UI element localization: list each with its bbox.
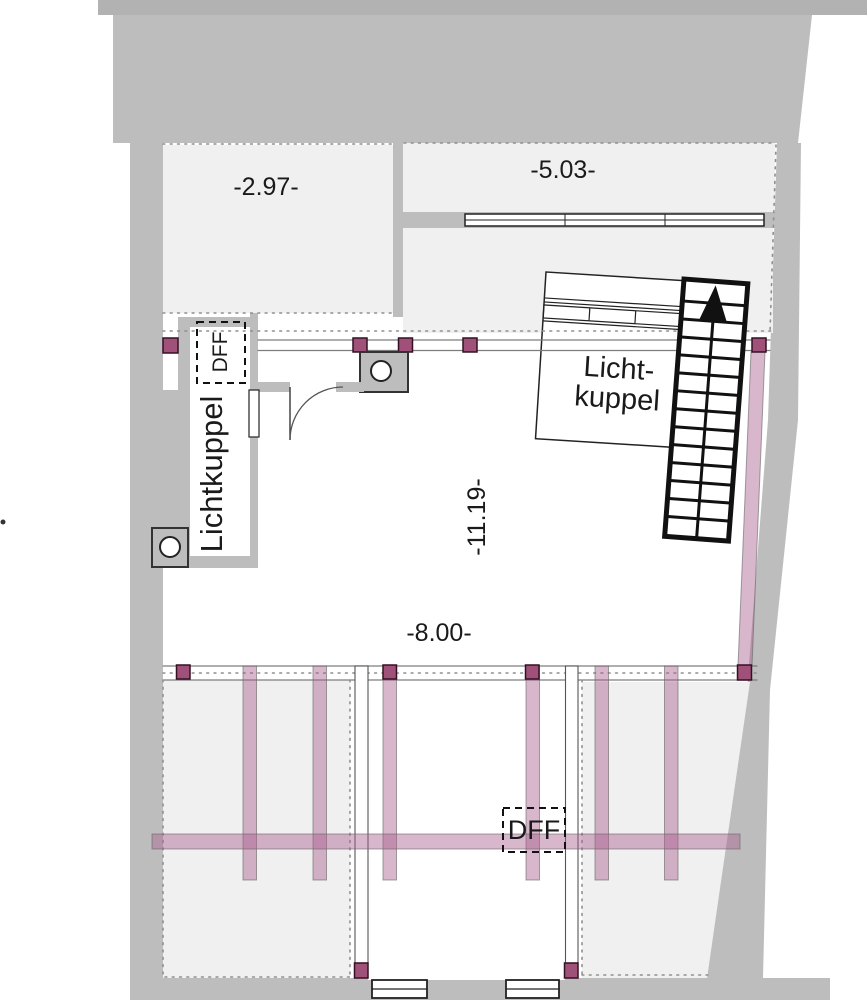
door [249,382,364,440]
dim-label-top-right: -5.03- [493,155,633,185]
post [565,963,579,978]
post [353,338,367,352]
beam-horizontal [152,834,740,849]
wall-top-block [113,15,812,143]
wall-top-room-divider [393,143,403,317]
dim-label-top-left: -2.97- [196,172,336,202]
shaft-label: Lichtkuppel [194,384,230,564]
post [526,665,540,679]
dff-label-bottom: DFF [484,814,584,846]
post [355,963,369,978]
door-swing-arc [290,387,343,440]
door-niche [249,390,259,437]
post [463,338,477,352]
wall-top-strip [98,0,867,15]
skylight-box-label-line2: kuppel [573,381,660,417]
skylight-box-label: Licht- kuppel [546,344,690,425]
round-support-icon [371,361,391,381]
dim-label-width: -8.00- [379,618,499,648]
dff-label-shaft: DFF [209,322,233,382]
stray-mark [1,520,6,525]
post [752,338,766,352]
room-top-left [163,145,393,313]
dim-label-depth: -11.19- [462,457,492,577]
post [383,665,397,679]
post [163,338,178,353]
wall-bottom-band [130,978,830,1000]
round-support-icon [160,537,180,557]
plan-drawing [0,0,867,1000]
post [399,338,413,352]
floor-plan: -2.97- -5.03- DFF Lichtkuppel Licht- kup… [0,0,867,1000]
post [738,665,752,680]
post [177,665,191,679]
